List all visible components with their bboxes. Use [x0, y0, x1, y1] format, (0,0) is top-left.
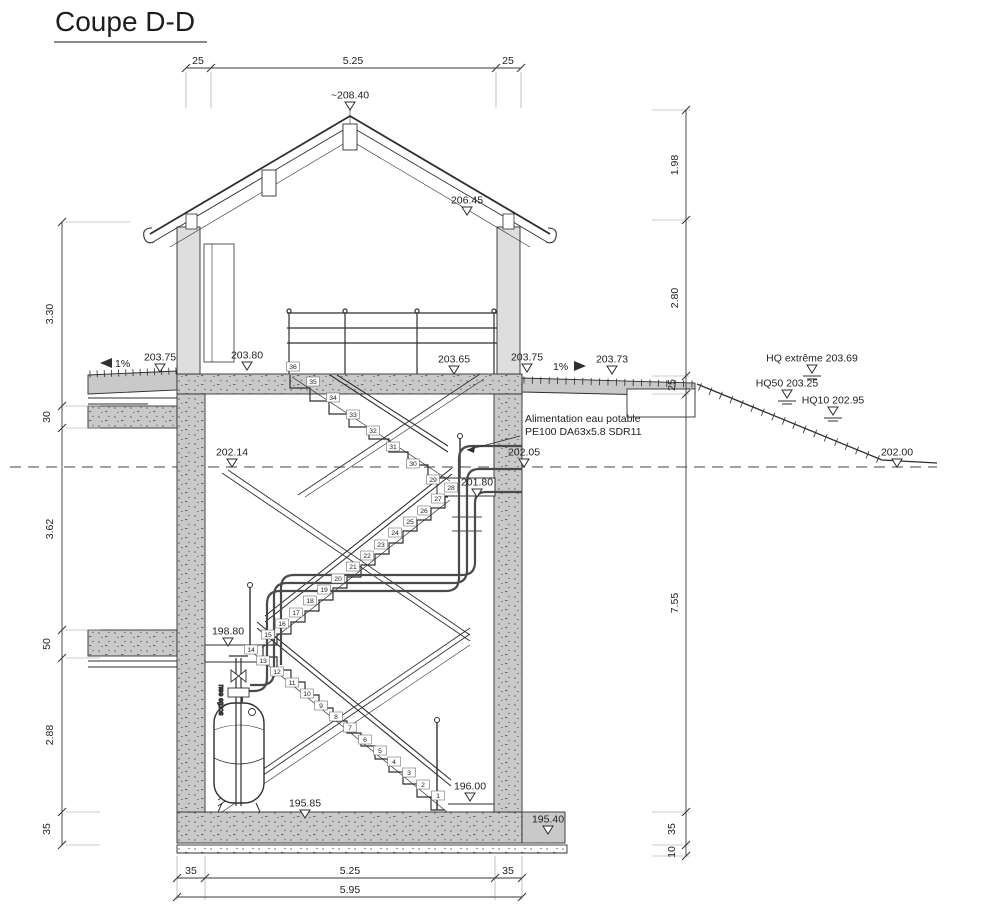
elevation-label: 202.00: [881, 447, 913, 459]
elevation-triangle-icon: [828, 407, 838, 415]
elevation-triangle-icon: [449, 366, 459, 374]
dim-left-2: 3.62: [44, 519, 56, 540]
gutter-left: [144, 228, 154, 243]
step-number: 18: [306, 598, 314, 605]
step-number: 9: [319, 703, 323, 710]
left-pavement: [88, 371, 177, 394]
dim-right-5: 10: [666, 846, 678, 858]
elevation-label: HQ50 203.25: [756, 378, 819, 390]
step-number: 17: [292, 610, 300, 617]
step-number: 13: [259, 658, 267, 665]
step-number: 2: [421, 782, 425, 789]
dimension-labels: 25 5.25 25 35 5.25 35 5.95 3.30 30 3.62 …: [41, 55, 681, 896]
hatch-tick: [782, 417, 785, 424]
wall-plate-right: [503, 214, 514, 229]
dim-right-1: 2.80: [669, 288, 681, 309]
step-number: 5: [378, 748, 382, 755]
step-number: 34: [329, 395, 337, 402]
dim-top-0: 25: [192, 55, 204, 67]
step-number: 32: [369, 428, 377, 435]
valve-icon: [231, 670, 239, 682]
elevation-triangle-icon: [227, 459, 237, 467]
extension-lines: [66, 72, 690, 900]
gutter-right: [546, 228, 556, 243]
step-number: 36: [289, 364, 297, 371]
title-block: Coupe D-D: [54, 6, 207, 42]
step-number: 1: [436, 793, 440, 800]
step-number: 21: [349, 564, 357, 571]
step-number: 24: [391, 530, 399, 537]
step-number: 23: [377, 542, 385, 549]
elevation-triangle-icon: [155, 364, 165, 372]
purlin-left: [262, 170, 276, 196]
elevation-label: 203.75: [144, 352, 176, 364]
elevation-label: 196.00: [454, 781, 486, 793]
hatch-tick: [793, 421, 796, 428]
section-drawing: Coupe D-D: [0, 0, 1000, 911]
flight-a-rail-2: [257, 622, 451, 780]
dim-left-0: 3.30: [44, 304, 56, 325]
elevation-triangle-icon: [892, 459, 902, 467]
elevation-label: 202.14: [216, 447, 248, 459]
step-number: 35: [309, 379, 317, 386]
step-number: 19: [320, 587, 328, 594]
dim-bottom-0: 35: [185, 865, 197, 877]
elevation-triangle-icon: [465, 793, 475, 801]
flight-b-rail-2: [265, 468, 452, 616]
hatch-tick: [751, 404, 754, 411]
elevation-label: 201.80: [461, 477, 493, 489]
elevation-label: HQ extrême 203.69: [766, 353, 858, 365]
hatch-tick: [761, 409, 764, 416]
pipe-note-line1: Alimentation eau potable: [525, 413, 641, 425]
dim-bottom-1: 5.25: [340, 865, 361, 877]
drawing-sheet: Coupe D-D: [0, 0, 1000, 911]
page-title: Coupe D-D: [55, 6, 195, 37]
dim-right-4: 35: [666, 823, 678, 835]
step-number: 11: [288, 680, 295, 687]
step-number: 4: [392, 759, 396, 766]
step-number: 6: [363, 737, 367, 744]
dim-right-3: 7.55: [669, 593, 681, 614]
dim-left-5: 35: [41, 823, 53, 835]
elevation-label: 198.80: [212, 626, 244, 638]
pipe-run-2: [250, 469, 522, 685]
flight-b-rail-1: [265, 474, 452, 622]
step-number: 22: [363, 553, 371, 560]
elevation-triangle-icon: [807, 365, 817, 373]
slope-arrow-right-icon: [574, 361, 586, 371]
step-number: 27: [434, 496, 442, 503]
step-number: 26: [420, 508, 428, 515]
step-number: 10: [303, 691, 311, 698]
pump-vertical-label: sortie eau: [218, 685, 225, 716]
dim-right-2: 25: [666, 379, 678, 391]
dim-top-1: 5.25: [343, 55, 364, 67]
slope-label-right: 1%: [553, 361, 568, 373]
step-number: 14: [247, 647, 255, 654]
elevation-label: 206.45: [451, 195, 483, 207]
elevation-triangle-icon: [607, 366, 617, 374]
step-number: 28: [447, 485, 455, 492]
dim-top-2: 25: [502, 55, 514, 67]
roof: [144, 110, 557, 247]
dim-bottom-total: 5.95: [340, 884, 361, 896]
dimension-chains: [58, 64, 690, 901]
elevation-label: 203.65: [438, 354, 470, 366]
interior-cabinet: [204, 244, 234, 362]
elevation-triangle-icon: [242, 362, 252, 370]
step-number: 30: [409, 461, 417, 468]
step-number: 3: [407, 770, 411, 777]
wall-plate-left: [186, 214, 197, 229]
elevation-label: 203.73: [596, 354, 628, 366]
elevation-label: 203.75: [511, 352, 543, 364]
lean-concrete: [177, 845, 567, 853]
elevation-label: ~208.40: [331, 90, 369, 102]
step-number: 7: [348, 725, 352, 732]
elevation-label: HQ10 202.95: [802, 395, 865, 407]
step-number: 20: [334, 576, 342, 583]
elevation-label: 203.80: [231, 350, 263, 362]
ridge-post: [343, 124, 357, 150]
dim-bottom-2: 35: [502, 865, 514, 877]
elevation-triangle-icon: [462, 207, 472, 215]
slope-arrow-left-icon: [100, 358, 112, 368]
elevation-label: 202.05: [508, 447, 540, 459]
dim-left-3: 50: [41, 638, 53, 650]
step-number: 33: [349, 412, 357, 419]
step-numbers: 1234567891011121314151617181920212223242…: [245, 362, 458, 800]
step-number: 29: [429, 477, 437, 484]
elevation-triangle-icon: [345, 102, 355, 110]
step-number: 31: [389, 444, 397, 451]
pipe-run-3: [281, 492, 522, 665]
step-number: 25: [406, 519, 414, 526]
elevation-triangle-icon: [782, 390, 792, 398]
roof-rafter-line: [170, 140, 530, 247]
elevation-label: 195.40: [532, 814, 564, 826]
pump-assembly: sortie eau: [214, 656, 264, 812]
dim-left-1: 30: [41, 411, 53, 423]
step-number: 16: [278, 621, 286, 628]
hatch-tick: [772, 413, 775, 420]
dim-left-4: 2.88: [44, 725, 56, 746]
valve-icon: [239, 670, 247, 682]
upper-wall-left: [177, 227, 200, 374]
dim-right-0: 1.98: [669, 155, 681, 176]
pipe-note-line2: PE100 DA63x5.8 SDR11: [525, 426, 642, 438]
step-number: 8: [334, 714, 338, 721]
pressure-vessel: [214, 703, 264, 803]
elevation-triangle-icon: [522, 364, 532, 372]
elevation-label: 195.85: [289, 798, 321, 810]
step-number: 15: [264, 632, 272, 639]
slope-label-left: 1%: [115, 358, 130, 370]
step-number: 12: [273, 669, 281, 676]
